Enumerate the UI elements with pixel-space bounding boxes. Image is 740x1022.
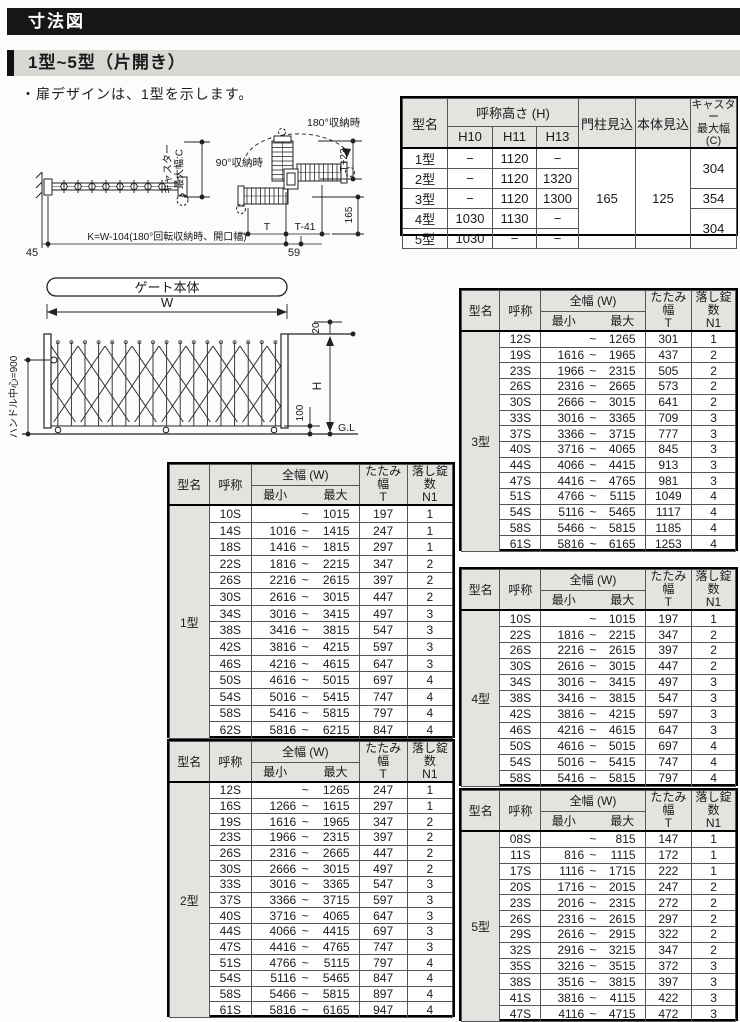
lock-count-cell: 3 (692, 706, 736, 722)
name-cell: 34S (209, 605, 251, 622)
width-max-cell: 5815 (312, 986, 359, 1002)
dim-t-label: T (264, 221, 271, 233)
lock-count-cell: 2 (407, 814, 452, 830)
tilde-cell: ~ (586, 489, 600, 505)
table-row: 42S3816~42155973 (170, 639, 453, 656)
table-row: 34S3016~34154973 (462, 674, 736, 690)
caster-cell: 304 (691, 148, 737, 189)
table-row: 30S2666~30156412 (462, 394, 736, 410)
lock-count-cell: 4 (407, 955, 452, 971)
table-row: 50S4616~50156974 (170, 672, 453, 689)
name-cell: 61S (500, 536, 541, 552)
col-name: 呼称 (209, 465, 251, 506)
tilde-cell: ~ (298, 939, 312, 955)
table-row: 23S1966~23155052 (462, 363, 736, 379)
tilde-cell: ~ (298, 970, 312, 986)
name-cell: 14S (209, 522, 251, 539)
name-cell: 19S (209, 814, 251, 830)
width-max-cell: 4765 (600, 473, 645, 489)
width-min-cell (252, 782, 299, 798)
fold-width-cell: 797 (645, 770, 692, 786)
name-cell: 17S (500, 863, 541, 879)
col-model: 型名 (462, 791, 500, 832)
fold-width-cell: 547 (359, 876, 407, 892)
name-cell: 12S (209, 782, 251, 798)
col-pillar: 門柱見込 (579, 99, 636, 149)
lock-count-cell: 3 (692, 457, 736, 473)
width-min-cell: 1616 (252, 814, 299, 830)
name-cell: 40S (209, 908, 251, 924)
lock-count-cell: 1 (692, 610, 736, 627)
dim-t41-label: T-41 (294, 221, 315, 233)
name-cell: 34S (500, 674, 541, 690)
width-max-cell: 3815 (312, 622, 359, 639)
width-max-cell: 4615 (600, 722, 645, 738)
fold-width-cell: 397 (645, 643, 692, 659)
deg90-label: 90°収納時 (216, 156, 264, 169)
table-row: 33S3016~33655473 (170, 876, 453, 892)
tilde-cell: ~ (586, 974, 600, 990)
fold-width-cell: 845 (645, 441, 692, 457)
col-caster: キャスター 最大幅 (C) (691, 99, 737, 149)
fold-width-cell: 747 (359, 939, 407, 955)
table-row: 54S5016~54157474 (170, 688, 453, 705)
name-cell: 12S (500, 331, 541, 347)
model-name-cell: 4型 (462, 610, 500, 787)
fold-width-cell: 347 (645, 942, 692, 958)
fold-width-cell: 247 (359, 522, 407, 539)
width-max-cell: 2315 (600, 895, 645, 911)
width-min-cell: 816 (541, 847, 586, 863)
table-row: 62S5816~62158474 (170, 722, 453, 739)
width-min-cell: 2666 (541, 394, 586, 410)
lock-count-cell: 1 (407, 539, 452, 556)
width-max-cell: 6165 (312, 1002, 359, 1018)
fold-width-cell: 197 (359, 505, 407, 522)
table-row: 23S1966~23153972 (170, 829, 453, 845)
width-max-cell: 2215 (312, 555, 359, 572)
h10-cell: 1030 (448, 209, 493, 229)
width-max-cell: 3715 (600, 426, 645, 442)
table-row: 41S3816~41154223 (462, 990, 736, 1006)
lock-count-cell: 4 (692, 504, 736, 520)
width-max-cell: 1415 (312, 522, 359, 539)
col-max: 最大 (600, 811, 645, 831)
width-max-cell: 1715 (600, 863, 645, 879)
table-row: 61S5816~61659474 (170, 1002, 453, 1018)
width-max-cell: 4115 (600, 990, 645, 1006)
t-plus-23-label: T+23 (339, 148, 350, 172)
caster-cell: 304 (691, 209, 737, 249)
model-name-cell: 2型 (170, 782, 210, 1018)
width-min-cell: 3816 (541, 706, 586, 722)
width-max-cell: 5815 (312, 705, 359, 722)
tilde-cell: ~ (586, 911, 600, 927)
caster-cell: 354 (691, 189, 737, 209)
tilde-cell: ~ (586, 426, 600, 442)
name-cell: 26S (209, 845, 251, 861)
table-row: 20S1716~20152472 (462, 879, 736, 895)
width-min-cell: 3816 (541, 990, 586, 1006)
tilde-cell: ~ (298, 782, 312, 798)
width-min-cell: 5466 (252, 986, 299, 1002)
fold-width-cell: 709 (645, 410, 692, 426)
name-cell: 47S (209, 939, 251, 955)
col-fold: たたみ幅 T (645, 791, 692, 832)
col-lock: 落し錠数 N1 (692, 570, 736, 611)
fold-width-cell: 1185 (645, 520, 692, 536)
tilde-cell: ~ (586, 690, 600, 706)
name-cell: 10S (209, 505, 251, 522)
width-max-cell: 4615 (312, 655, 359, 672)
fold-width-cell: 641 (645, 394, 692, 410)
fold-width-cell: 497 (359, 605, 407, 622)
lock-count-cell: 3 (407, 923, 452, 939)
width-min-cell: 3016 (541, 674, 586, 690)
width-max-cell: 1015 (312, 505, 359, 522)
width-max-cell: 1615 (312, 798, 359, 814)
fold-width-cell: 472 (645, 1006, 692, 1022)
col-gap (586, 811, 600, 831)
fold-width-cell: 297 (359, 798, 407, 814)
tilde-cell: ~ (298, 923, 312, 939)
fold-width-cell: 897 (359, 986, 407, 1002)
handle-detail (51, 357, 57, 363)
pillar-cell: 165 (579, 148, 636, 249)
width-max-cell: 1815 (312, 539, 359, 556)
width-max-cell: 2915 (600, 926, 645, 942)
lock-count-cell: 3 (692, 473, 736, 489)
width-max-cell: 3515 (600, 958, 645, 974)
tilde-cell: ~ (298, 688, 312, 705)
col-h11: H11 (493, 126, 537, 148)
fold-width-cell: 913 (645, 457, 692, 473)
h10-cell: − (448, 169, 493, 189)
fold-width-cell: 1049 (645, 489, 692, 505)
width-min-cell: 2216 (252, 572, 299, 589)
width-min-cell: 3816 (252, 639, 299, 656)
h-label: H (310, 382, 324, 391)
name-cell: 30S (500, 658, 541, 674)
fold-width-cell: 422 (645, 990, 692, 1006)
model-cell: 4型 (403, 209, 448, 229)
name-cell: 37S (500, 426, 541, 442)
table-row: 44S4066~44159133 (462, 457, 736, 473)
fold-width-cell: 322 (645, 926, 692, 942)
fold-width-cell: 847 (359, 970, 407, 986)
name-cell: 11S (500, 847, 541, 863)
width-min-cell: 5416 (541, 770, 586, 786)
col-lock: 落し錠数 N1 (692, 791, 736, 832)
tilde-cell: ~ (298, 639, 312, 656)
width-min-cell: 3216 (541, 958, 586, 974)
fold-width-cell: 247 (645, 879, 692, 895)
name-cell: 62S (209, 722, 251, 739)
width-min-cell: 2666 (252, 861, 299, 877)
width-max-cell: 5465 (600, 504, 645, 520)
width-max-cell: 3015 (600, 658, 645, 674)
h11-cell: 1120 (493, 148, 537, 169)
lock-count-cell: 4 (407, 986, 452, 1002)
spec-table: 型名 呼称高さ (H) 門柱見込 本体見込 キャスター 最大幅 (C) H10 … (400, 96, 738, 236)
caster-width-dimension (184, 140, 210, 199)
table-row: 47S4416~47659813 (462, 473, 736, 489)
name-cell: 54S (209, 970, 251, 986)
width-max-cell: 3365 (600, 410, 645, 426)
fold-width-cell: 297 (645, 911, 692, 927)
width-max-cell: 4415 (600, 457, 645, 473)
handle-center-label: ハンドル中心=900 (8, 355, 20, 438)
width-min-cell: 4766 (541, 489, 586, 505)
width-max-cell: 2665 (312, 845, 359, 861)
tilde-cell: ~ (298, 798, 312, 814)
width-max-cell: 2315 (600, 363, 645, 379)
tilde-cell: ~ (586, 754, 600, 770)
width-min-cell: 2016 (541, 895, 586, 911)
tilde-cell: ~ (586, 847, 600, 863)
width-min-cell (541, 331, 586, 347)
h10-cell: 1030 (448, 229, 493, 249)
fold-width-cell: 597 (359, 892, 407, 908)
table-row: 16S1266~16152971 (170, 798, 453, 814)
name-cell: 42S (500, 706, 541, 722)
side-dimensions (312, 139, 364, 236)
lock-count-cell: 2 (692, 643, 736, 659)
tilde-cell: ~ (586, 738, 600, 754)
width-min-cell: 1716 (541, 879, 586, 895)
width-max-cell: 5015 (312, 672, 359, 689)
tilde-cell: ~ (298, 845, 312, 861)
name-cell: 58S (209, 705, 251, 722)
name-cell: 22S (500, 627, 541, 643)
width-min-cell: 4416 (252, 939, 299, 955)
col-lock: 落し錠数 N1 (407, 742, 452, 783)
col-name: 呼称 (500, 791, 541, 832)
lock-count-cell: 3 (692, 410, 736, 426)
lock-count-cell: 3 (407, 892, 452, 908)
lock-count-cell: 1 (407, 505, 452, 522)
tilde-cell: ~ (298, 589, 312, 606)
tilde-cell: ~ (586, 674, 600, 690)
width-min-cell: 4616 (541, 738, 586, 754)
model-cell: 5型 (403, 229, 448, 249)
table-row: 26S2316~26654472 (170, 845, 453, 861)
table-row: 19S1616~19654372 (462, 347, 736, 363)
width-max-cell: 3815 (600, 974, 645, 990)
width-min-cell: 3016 (541, 410, 586, 426)
width-min-cell: 3416 (252, 622, 299, 639)
table-row: 30S2666~30154972 (170, 861, 453, 877)
model-table-type4: 型名 呼称 全幅 (W) たたみ幅 T 落し錠数 N1 最小 最大 4型10S~… (459, 567, 738, 786)
width-min-cell: 2316 (541, 379, 586, 395)
width-min-cell: 2316 (252, 845, 299, 861)
fold-width-cell: 347 (645, 627, 692, 643)
lock-count-cell: 4 (692, 738, 736, 754)
width-min-cell: 1616 (541, 347, 586, 363)
col-lock: 落し錠数 N1 (407, 465, 452, 506)
tilde-cell: ~ (586, 926, 600, 942)
table-row: 46S4216~46156473 (170, 655, 453, 672)
name-cell: 22S (209, 555, 251, 572)
accordion-gate (44, 334, 288, 433)
width-min-cell (252, 505, 299, 522)
width-min-cell: 5816 (252, 1002, 299, 1018)
width-min-cell: 5016 (541, 754, 586, 770)
fold-width-cell: 297 (359, 539, 407, 556)
lock-count-cell: 2 (407, 845, 452, 861)
name-cell: 35S (500, 958, 541, 974)
tilde-cell: ~ (586, 610, 600, 627)
name-cell: 30S (209, 861, 251, 877)
width-max-cell: 2215 (600, 627, 645, 643)
width-max-cell: 2615 (312, 572, 359, 589)
width-max-cell: 4065 (312, 908, 359, 924)
fold-width-cell: 1117 (645, 504, 692, 520)
tilde-cell: ~ (298, 955, 312, 971)
tilde-cell: ~ (586, 363, 600, 379)
fold-width-cell: 747 (645, 754, 692, 770)
tilde-cell: ~ (586, 879, 600, 895)
fold-width-cell: 397 (359, 572, 407, 589)
width-min-cell: 4766 (252, 955, 299, 971)
fold-width-cell: 497 (359, 861, 407, 877)
table-row: 58S5466~581511854 (462, 520, 736, 536)
dim-100-label: 100 (295, 404, 306, 421)
width-max-cell: 1965 (600, 347, 645, 363)
tilde-cell: ~ (586, 863, 600, 879)
width-max-cell: 3715 (312, 892, 359, 908)
col-gap (298, 485, 312, 505)
col-max: 最大 (312, 762, 359, 782)
col-max: 最大 (312, 485, 359, 505)
lock-count-cell: 3 (692, 426, 736, 442)
name-cell: 23S (500, 363, 541, 379)
table-row: 51S4766~511510494 (462, 489, 736, 505)
name-cell: 54S (500, 504, 541, 520)
table-row: 37S3366~37157773 (462, 426, 736, 442)
tilde-cell: ~ (298, 555, 312, 572)
width-min-cell: 3016 (252, 876, 299, 892)
name-cell: 33S (500, 410, 541, 426)
width-min-cell: 5416 (252, 705, 299, 722)
width-min-cell: 2316 (541, 911, 586, 927)
width-max-cell: 4765 (312, 939, 359, 955)
width-max-cell: 5815 (600, 520, 645, 536)
col-max: 最大 (600, 590, 645, 610)
name-cell: 26S (500, 379, 541, 395)
width-max-cell: 5015 (600, 738, 645, 754)
table-row: 22S1816~22153472 (462, 627, 736, 643)
name-cell: 26S (500, 911, 541, 927)
width-min-cell: 4066 (252, 923, 299, 939)
lock-count-cell: 2 (692, 379, 736, 395)
width-min-cell: 2616 (541, 658, 586, 674)
width-max-cell: 1965 (312, 814, 359, 830)
lock-count-cell: 2 (692, 627, 736, 643)
table-row: 14S1016~14152471 (170, 522, 453, 539)
fold-width-cell: 777 (645, 426, 692, 442)
table-row: 3型12S~12653011 (462, 331, 736, 347)
lock-count-cell: 3 (692, 674, 736, 690)
model-cell: 3型 (403, 189, 448, 209)
h10-cell: − (448, 189, 493, 209)
tilde-cell: ~ (586, 958, 600, 974)
width-min-cell: 1966 (541, 363, 586, 379)
tilde-cell: ~ (298, 572, 312, 589)
h13-cell: 1320 (537, 169, 579, 189)
col-fold: たたみ幅 T (359, 742, 407, 783)
lock-count-cell: 3 (407, 622, 452, 639)
fold-width-cell: 547 (359, 622, 407, 639)
tilde-cell: ~ (586, 831, 600, 847)
width-max-cell: 4215 (312, 639, 359, 656)
fold-width-cell: 505 (645, 363, 692, 379)
col-name: 呼称 (500, 570, 541, 611)
col-fold: たたみ幅 T (645, 291, 692, 332)
name-cell: 54S (209, 688, 251, 705)
name-cell: 40S (500, 441, 541, 457)
h11-cell: − (493, 229, 537, 249)
width-max-cell: 2665 (600, 379, 645, 395)
width-min-cell: 5816 (252, 722, 299, 739)
table-row: 5型08S~8151471 (462, 831, 736, 847)
gate-body-label: ゲート本体 (134, 280, 199, 295)
width-max-cell: 6165 (600, 536, 645, 552)
name-cell: 30S (209, 589, 251, 606)
tilde-cell: ~ (298, 908, 312, 924)
fold-width-cell: 697 (359, 923, 407, 939)
lock-count-cell: 4 (407, 1002, 452, 1018)
fold-width-cell: 647 (645, 722, 692, 738)
name-cell: 46S (209, 655, 251, 672)
lock-count-cell: 2 (407, 589, 452, 606)
name-cell: 38S (500, 690, 541, 706)
width-max-cell: 3365 (312, 876, 359, 892)
width-max-cell: 1015 (600, 610, 645, 627)
lock-count-cell: 3 (407, 655, 452, 672)
width-min-cell: 5016 (252, 688, 299, 705)
tilde-cell: ~ (586, 410, 600, 426)
width-min-cell (541, 610, 586, 627)
name-cell: 44S (209, 923, 251, 939)
lock-count-cell: 3 (692, 990, 736, 1006)
lock-count-cell: 3 (407, 605, 452, 622)
tilde-cell: ~ (298, 986, 312, 1002)
tilde-cell: ~ (586, 658, 600, 674)
model-name-cell: 3型 (462, 331, 500, 552)
tilde-cell: ~ (586, 379, 600, 395)
table-row: 42S3816~42155973 (462, 706, 736, 722)
width-max-cell: 3015 (312, 861, 359, 877)
width-min-cell: 3016 (252, 605, 299, 622)
table-row: 2型12S~12652471 (170, 782, 453, 798)
tilde-cell: ~ (586, 347, 600, 363)
fold-width-cell: 797 (359, 705, 407, 722)
width-min-cell: 3366 (252, 892, 299, 908)
tilde-cell: ~ (298, 892, 312, 908)
col-model: 型名 (462, 570, 500, 611)
tilde-cell: ~ (586, 394, 600, 410)
name-cell: 51S (209, 955, 251, 971)
name-cell: 23S (209, 829, 251, 845)
table-row: 4型10S~10151971 (462, 610, 736, 627)
col-fold: たたみ幅 T (645, 570, 692, 611)
fold-width-cell: 397 (359, 829, 407, 845)
lock-count-cell: 4 (692, 536, 736, 552)
fold-width-cell: 147 (645, 831, 692, 847)
name-cell: 26S (209, 572, 251, 589)
width-min-cell: 5116 (541, 504, 586, 520)
